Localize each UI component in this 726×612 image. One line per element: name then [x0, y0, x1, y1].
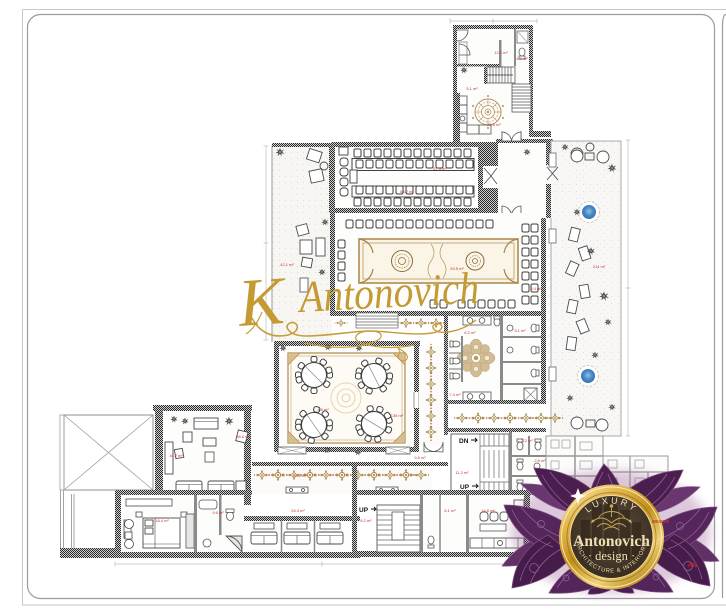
svg-text:18.4 m²: 18.4 m² — [155, 518, 169, 523]
svg-text:11.2 m²: 11.2 m² — [455, 470, 469, 475]
svg-text:4.2 m²: 4.2 m² — [516, 56, 528, 61]
svg-text:3.1 m²: 3.1 m² — [514, 328, 526, 333]
svg-text:K: K — [235, 262, 290, 341]
svg-text:6.1 m²: 6.1 m² — [444, 508, 456, 513]
svg-text:2.8 m²: 2.8 m² — [534, 458, 546, 463]
svg-text:DN: DN — [459, 438, 469, 445]
svg-text:24.2 m²: 24.2 m² — [293, 473, 307, 478]
svg-text:9.8 m²: 9.8 m² — [414, 455, 426, 460]
svg-text:UP: UP — [359, 507, 369, 514]
svg-text:12.4 m²: 12.4 m² — [494, 50, 508, 55]
svg-text:42.1 m²: 42.1 m² — [280, 262, 294, 267]
svg-text:138 m²: 138 m² — [391, 413, 404, 418]
svg-text:26.3 m²: 26.3 m² — [291, 508, 305, 513]
svg-text:38.6 m²: 38.6 m² — [236, 434, 250, 439]
svg-text:Antonovich: Antonovich — [573, 533, 650, 550]
svg-text:7.4 m²: 7.4 m² — [449, 392, 461, 397]
svg-text:UP: UP — [460, 484, 470, 491]
svg-text:· design ·: · design · — [588, 549, 635, 563]
svg-text:214 m²: 214 m² — [593, 264, 606, 269]
svg-text:Antonovich: Antonovich — [295, 263, 480, 322]
svg-text:6.2 m²: 6.2 m² — [464, 330, 476, 335]
svg-text:8.2 m²: 8.2 m² — [360, 518, 372, 523]
svg-text:14.8 m²: 14.8 m² — [481, 508, 495, 513]
svg-text:28.6 m²: 28.6 m² — [487, 122, 501, 127]
svg-text:87.3 m²: 87.3 m² — [433, 166, 447, 171]
svg-text:5.1 m²: 5.1 m² — [466, 86, 478, 91]
svg-text:64.2 m²: 64.2 m² — [400, 189, 414, 194]
svg-text:3.2 m²: 3.2 m² — [521, 438, 533, 443]
svg-text:DESIGN: DESIGN — [652, 519, 669, 524]
svg-text:9.6 m²: 9.6 m² — [212, 510, 224, 515]
svg-text:AN: AN — [688, 563, 697, 569]
svg-text:8.4 m²: 8.4 m² — [530, 286, 542, 291]
svg-text:4.6 m²: 4.6 m² — [317, 407, 329, 412]
svg-text:16.2 m²: 16.2 m² — [169, 453, 183, 458]
